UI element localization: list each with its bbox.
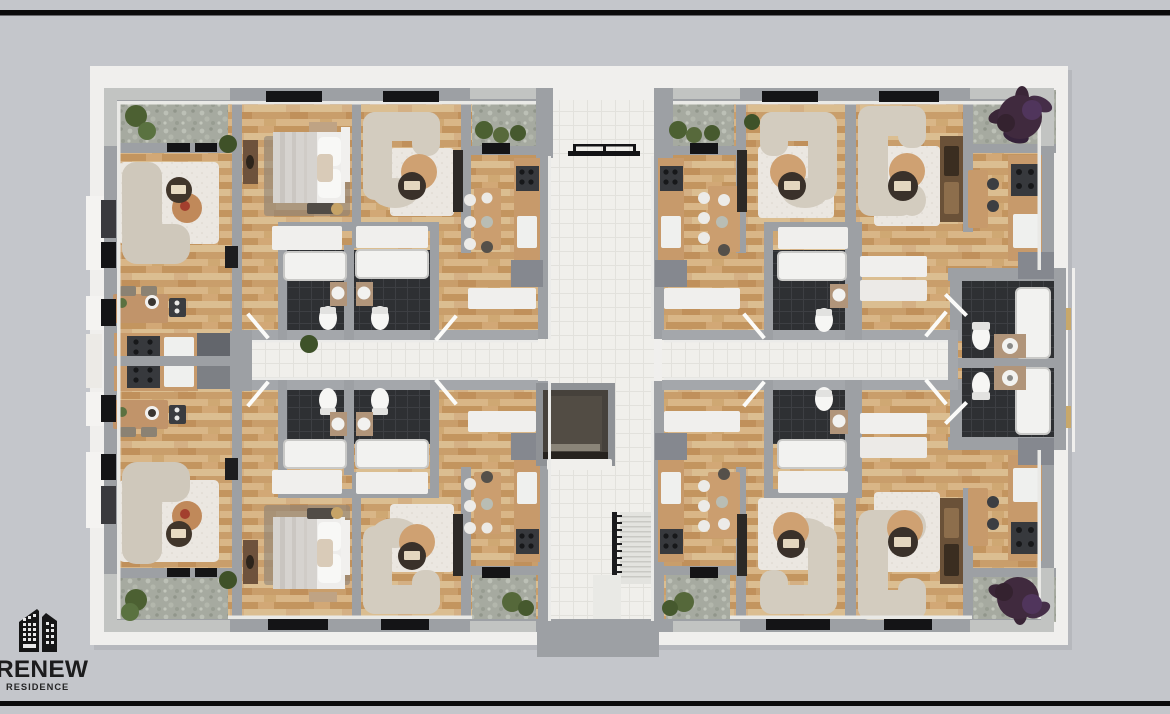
svg-text:RENEW: RENEW — [0, 656, 89, 683]
svg-text:RESIDENCE: RESIDENCE — [6, 682, 69, 692]
